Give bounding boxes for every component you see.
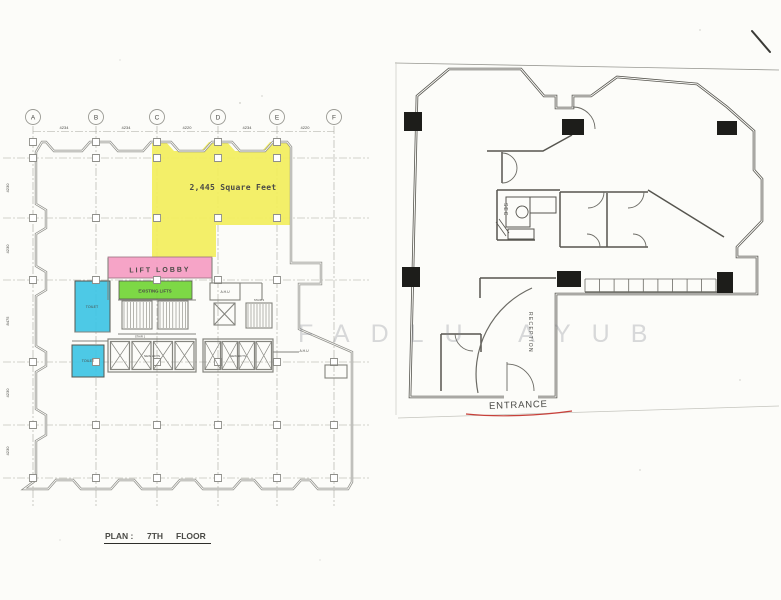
grid-bubbles (26, 110, 342, 125)
scan-artifact-lines (395, 62, 779, 418)
grid-label-f: F (332, 115, 336, 122)
dim-ef: 4220 (301, 125, 311, 130)
stair-right-label: STAIR 2 (254, 298, 265, 302)
ahu-upper-label: A.H.U (220, 290, 230, 294)
door-arcs (455, 107, 646, 393)
dim-row2: 4230 (5, 244, 10, 254)
grid-label-e: E (275, 115, 280, 122)
ahu-lower-label: A.H.U (299, 349, 309, 353)
plan-caption: PLAN : 7TH FLOOR (104, 531, 211, 544)
dim-row1: 4230 (5, 183, 10, 193)
grid-label-a: A (31, 115, 36, 122)
lift-lobby-label: LIFT LOBBY (129, 266, 190, 274)
dim-ab: 4234 (60, 125, 70, 130)
grid-bubble-labels: A B C D E F (31, 115, 336, 122)
existing-lifts-label: EXISTING LIFTS (138, 289, 171, 294)
sec-label: SEC (502, 203, 508, 216)
cabinet-row (585, 279, 716, 292)
floor-plan-document: A B C D E F 4234 4234 4220 4234 4220 423… (0, 0, 781, 600)
caption-floor: 7TH (147, 531, 163, 541)
dim-row3: 8475 (5, 316, 10, 326)
area-label: 2,445 Square Feet (190, 183, 277, 192)
dim-row4: 4230 (5, 388, 10, 398)
toilet-lower-label: TOILET (82, 359, 95, 363)
plans-drawing: A B C D E F 4234 4234 4220 4234 4220 423… (0, 0, 781, 600)
entrance-label: ENTRANCE (489, 399, 548, 412)
right-floor-plan: SEC RECEPTION ENTRANCE (395, 31, 779, 418)
stair-left-label: STAIR 1 (135, 335, 146, 339)
grid-label-b: B (94, 115, 98, 122)
pen-stroke-mark (752, 31, 770, 52)
grid-label-d: D (216, 115, 221, 122)
caption-prefix: PLAN : (105, 531, 134, 541)
caption-suffix: FLOOR (176, 531, 206, 541)
dim-bc: 4234 (122, 125, 132, 130)
toilet-upper-label: TOILET (86, 305, 99, 309)
side-dimensions: 4230 4230 8475 4230 4230 (5, 183, 10, 456)
office-outline (410, 69, 762, 401)
lift-bank-left-label: NEW LIFTS (144, 354, 160, 358)
grid-label-c: C (155, 115, 160, 122)
top-dimensions: 4234 4234 4220 4234 4220 (60, 125, 311, 130)
dim-de: 4234 (243, 125, 253, 130)
lift-bank-right-label: NEW LIFTS (230, 354, 246, 358)
dim-row5: 4230 (5, 446, 10, 456)
left-floor-plan: A B C D E F 4234 4234 4220 4234 4220 423… (3, 110, 369, 544)
black-columns (402, 112, 737, 293)
entrance-underline (466, 411, 572, 416)
dim-cd: 4220 (183, 125, 193, 130)
lift-banks (108, 339, 273, 372)
interior-walls (441, 135, 724, 391)
reception-label: RECEPTION (527, 312, 533, 353)
